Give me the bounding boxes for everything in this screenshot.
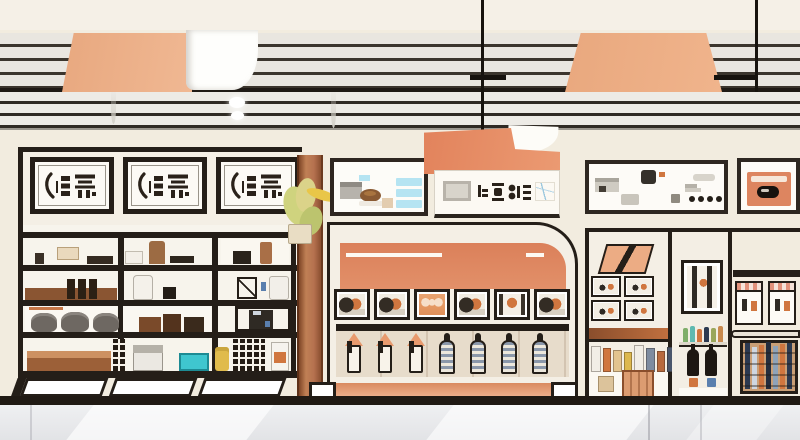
bottle-shelf [336, 331, 569, 377]
cabinet-band [589, 328, 668, 339]
product-stick [29, 307, 63, 310]
menu-price-line [396, 200, 422, 208]
display-figure [742, 299, 747, 311]
mini-framed-picture [591, 276, 621, 297]
faux-hanzi-glyphs [133, 171, 197, 201]
product-stone-jar [61, 312, 89, 332]
bottle-label [378, 341, 383, 353]
mini-bottle [690, 326, 695, 342]
picture-image [499, 294, 525, 315]
product-teal-box [179, 353, 209, 371]
product-box [57, 247, 79, 260]
mini-picture-image [594, 303, 618, 318]
board-dot-row [689, 196, 722, 202]
hanging-drop-ornament [331, 92, 336, 128]
dark-bottle [687, 349, 699, 376]
plaque-mat [131, 165, 199, 206]
tilted-display-case [20, 378, 109, 397]
shelf-bar [23, 232, 300, 238]
menu-plate [359, 201, 383, 206]
floor-reflection [66, 405, 273, 440]
display-figure [775, 299, 780, 311]
recessed-light [229, 97, 245, 108]
board-chip [599, 186, 606, 192]
product-box [163, 287, 176, 299]
menu-box-photo [382, 198, 393, 208]
orange-card-frame [737, 158, 800, 214]
product-bit [689, 378, 698, 387]
narrow-display [672, 232, 728, 398]
plaque-mat [38, 165, 106, 206]
hanging-sign-board [434, 170, 560, 218]
product-box [233, 251, 251, 264]
left-shelving-unit [23, 225, 300, 378]
pendant-lamp-shade [565, 33, 722, 92]
crate-product [759, 345, 764, 389]
bottle-label [409, 341, 414, 353]
product-jar [260, 242, 272, 264]
machine-top [133, 345, 163, 353]
board-dot [716, 196, 722, 202]
crate-product [745, 343, 750, 389]
calligraphy-plaque [123, 157, 207, 214]
product-shelf-row [591, 342, 667, 372]
shelf-bar [23, 332, 300, 338]
product-item [35, 253, 44, 264]
calligraphy-plaque [30, 157, 114, 214]
product-box [184, 317, 204, 332]
display-bottle [499, 333, 519, 375]
awning-framed-display [735, 281, 763, 325]
base-crate [622, 370, 654, 398]
header-trim [346, 253, 442, 257]
product-crate [740, 340, 798, 394]
leaning-peach-box [598, 244, 655, 274]
lamp-rod-left [470, 75, 506, 80]
crate-product [766, 342, 771, 389]
product-stone-jar [31, 313, 57, 332]
product-bit [707, 378, 716, 387]
board-rect [621, 194, 639, 205]
crate-product [787, 343, 792, 389]
shelf-product [634, 345, 644, 372]
product-tray [170, 256, 194, 263]
awning-frame-row [735, 281, 796, 325]
bottle-label [347, 341, 352, 353]
mini-bottle [683, 328, 688, 342]
picture-image [379, 294, 405, 315]
shelf-product [591, 346, 601, 372]
floor-seam [30, 405, 32, 440]
mini-picture-image [594, 279, 618, 294]
striped-awning [737, 283, 761, 292]
plaque-row [30, 157, 300, 214]
product-item [261, 282, 266, 291]
awning-framed-display [768, 281, 796, 325]
ceiling-slats-lower [0, 92, 800, 130]
shelf-product [613, 350, 622, 372]
center-display-cabinet [327, 222, 578, 400]
board-card-top [595, 178, 619, 182]
mini-framed-picture [624, 300, 654, 321]
product-crate-lid [27, 351, 111, 358]
shelf-divider [291, 232, 296, 378]
machine-button [265, 321, 270, 327]
menu-price-line [396, 189, 422, 197]
product-canister [269, 276, 289, 300]
narrow-framed-picture [681, 260, 723, 314]
mini-shelf-board [679, 342, 727, 347]
bottle-body [532, 340, 548, 374]
mini-frame-grid [591, 276, 654, 321]
mini-framed-picture [624, 276, 654, 297]
picture-image [339, 294, 365, 315]
header-trim [526, 253, 544, 257]
product-canister [149, 241, 165, 264]
narrow-picture-image [687, 266, 717, 308]
store-scene [0, 0, 800, 440]
product-yellow-jar [215, 347, 229, 371]
rack-shelf [731, 330, 800, 338]
mini-bottle-row [683, 324, 725, 342]
base-box [598, 376, 614, 392]
floor-seam [648, 405, 650, 440]
card-slot [751, 176, 787, 182]
mini-framed-picture [591, 300, 621, 321]
mini-bottle [697, 329, 702, 342]
pendant-cord [481, 0, 484, 130]
shelf-product [657, 351, 665, 372]
picture-image [459, 294, 485, 315]
product-box [163, 314, 181, 332]
product-cylinder [133, 275, 153, 300]
framed-product-picture [334, 289, 370, 320]
product-bottle [67, 279, 75, 299]
display-bottle [437, 333, 457, 375]
bottle-body [439, 340, 455, 374]
framed-picture-row [334, 289, 570, 320]
shelf-backdrop [221, 239, 289, 264]
framed-product-picture [454, 289, 490, 320]
bottle-body [470, 340, 486, 374]
floor-seam [700, 405, 702, 440]
appliance-top [340, 182, 362, 187]
bottle-body [501, 340, 517, 374]
floor-reflection [426, 405, 653, 440]
cabinet-header-band [340, 243, 566, 289]
framed-product-picture [414, 289, 450, 320]
machine-screen [253, 311, 261, 315]
display-bottle [468, 333, 488, 375]
framed-product-picture [374, 289, 410, 320]
faux-hanzi-glyphs [40, 171, 104, 201]
display-bottle [344, 333, 364, 375]
product-stand [237, 277, 257, 299]
dark-bottle [705, 349, 717, 376]
display-counter-row [23, 378, 300, 398]
rack-canopy-bar [733, 270, 800, 277]
faux-hanzi-glyphs [226, 171, 290, 201]
product-tray [87, 256, 113, 264]
product-stone-jar [93, 313, 119, 332]
cabinet-base-band [336, 383, 569, 397]
mini-bottle [718, 326, 723, 342]
mini-picture-image [627, 279, 651, 294]
display-figure [784, 301, 790, 311]
shelf-bar [23, 371, 300, 378]
board-square [671, 194, 680, 203]
card-glint [761, 189, 769, 192]
menu-tag [359, 175, 370, 181]
card-product [757, 186, 779, 198]
pendant-cord-right [755, 0, 758, 92]
framed-product-picture [494, 289, 530, 320]
right-post [728, 232, 732, 398]
product-bottle [89, 279, 97, 299]
board-dark-square [641, 170, 656, 184]
faux-hanzi-glyphs [477, 181, 533, 203]
lamp-rod-right [714, 75, 756, 80]
display-figure [751, 301, 757, 311]
shelf-product [624, 352, 632, 372]
mini-picture-image [627, 303, 651, 318]
display-bottle [530, 333, 550, 375]
product-box [125, 251, 143, 264]
board-pill [693, 174, 715, 181]
display-bottle [406, 333, 426, 375]
sign-sketch [535, 182, 555, 201]
product-box [139, 317, 161, 332]
board-dot [707, 196, 713, 202]
plant-pot [288, 224, 312, 244]
product-grid-rack [113, 339, 126, 371]
cabinet-shelf-bar [336, 324, 569, 331]
ceiling-paper-banner [186, 30, 258, 90]
plaque-mat [224, 165, 292, 206]
product-crate [27, 358, 111, 371]
shelf-product [646, 348, 655, 372]
tilted-display-case [198, 378, 287, 397]
right-product-board [585, 160, 728, 214]
board-dot [689, 196, 695, 202]
board-orange-chip [659, 172, 665, 177]
tilted-display-case [109, 378, 198, 397]
mini-bottle [704, 327, 709, 342]
floor-baseline [0, 396, 800, 405]
shelf-bar [23, 265, 300, 271]
mini-bottle [711, 328, 716, 342]
ceiling-awning-left [62, 33, 192, 92]
bottle-label [274, 352, 286, 363]
product-grid-rack [233, 339, 265, 371]
picture-image [539, 294, 565, 315]
crate-product [773, 346, 778, 389]
framed-product-picture [534, 289, 570, 320]
striped-awning [770, 283, 794, 292]
menu-price-line [396, 178, 422, 186]
hanging-drop-ornament [111, 92, 116, 124]
picture-image [419, 294, 445, 315]
board-dot [698, 196, 704, 202]
board-label [685, 188, 701, 192]
display-bottle [375, 333, 395, 375]
menu-board [330, 158, 428, 216]
crate-product [752, 347, 757, 389]
recessed-light [231, 111, 244, 120]
crate-product [780, 344, 785, 389]
bun-glaze [364, 191, 376, 196]
shelf-product [603, 348, 611, 372]
product-bottle [78, 279, 86, 299]
sign-photo-inner [446, 184, 468, 198]
